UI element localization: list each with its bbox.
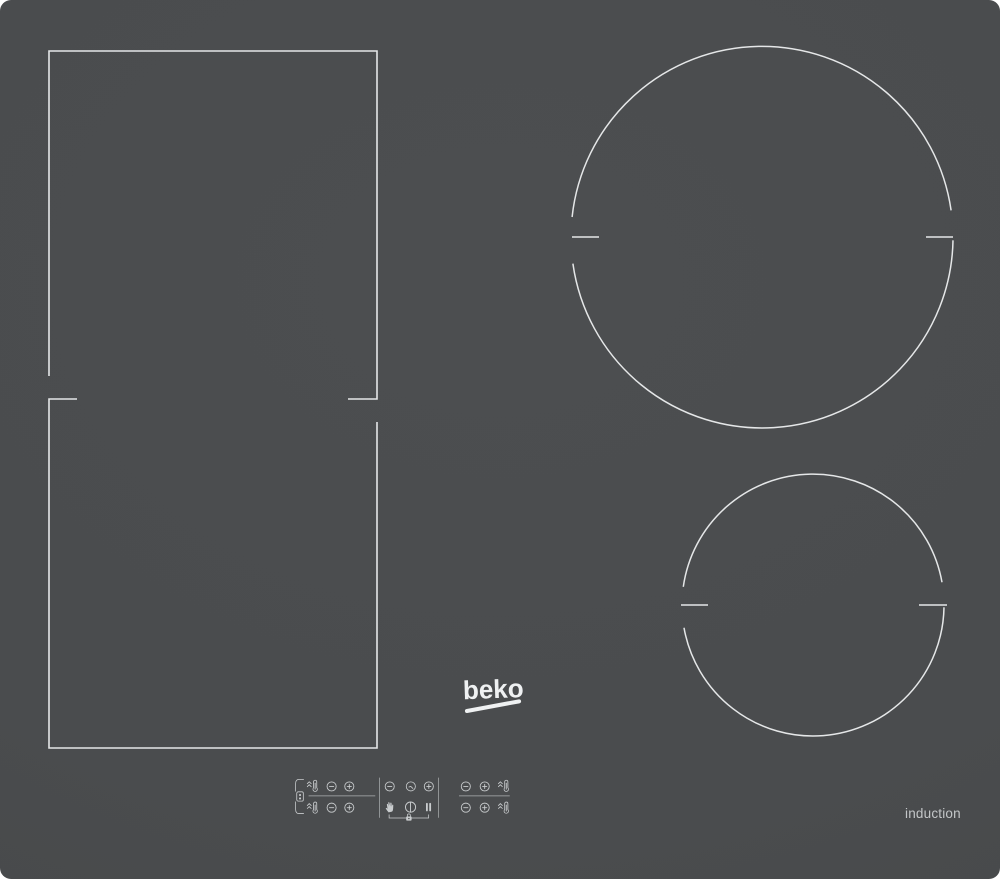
pause-hand-icon[interactable] <box>385 802 395 813</box>
plus-icon[interactable] <box>424 782 433 791</box>
beko-logo-text: beko <box>462 676 533 702</box>
plus-icon[interactable] <box>345 782 354 791</box>
booster-icon[interactable] <box>307 780 317 791</box>
right-control-group <box>459 780 510 813</box>
booster-icon[interactable] <box>498 780 508 791</box>
flex-zone-top-outline <box>49 51 377 399</box>
timer-clock-icon[interactable] <box>406 782 415 791</box>
minus-icon[interactable] <box>385 782 394 791</box>
flex-link-icon[interactable] <box>297 792 304 801</box>
power-icon[interactable] <box>405 802 415 812</box>
booster-icon[interactable] <box>498 802 508 813</box>
flex-control-group <box>296 779 376 813</box>
zone-small-round-outline <box>681 474 947 736</box>
plus-icon[interactable] <box>345 803 354 812</box>
control-panel <box>285 750 695 850</box>
minus-icon[interactable] <box>461 782 470 791</box>
minus-icon[interactable] <box>461 803 470 812</box>
flex-zone-bottom-outline <box>49 399 377 748</box>
plus-icon[interactable] <box>480 782 489 791</box>
center-control-group <box>379 778 438 821</box>
booster-icon[interactable] <box>307 802 317 813</box>
plus-icon[interactable] <box>480 803 489 812</box>
pause-icon[interactable] <box>426 803 431 811</box>
minus-icon[interactable] <box>327 782 336 791</box>
minus-icon[interactable] <box>327 803 336 812</box>
cooking-zones <box>0 0 1000 879</box>
key-lock-icon[interactable] <box>406 814 411 821</box>
zone-large-round-outline <box>572 46 953 428</box>
product-image: beko induction <box>0 0 1000 879</box>
induction-label: induction <box>905 806 961 821</box>
beko-logo: beko <box>462 676 533 709</box>
